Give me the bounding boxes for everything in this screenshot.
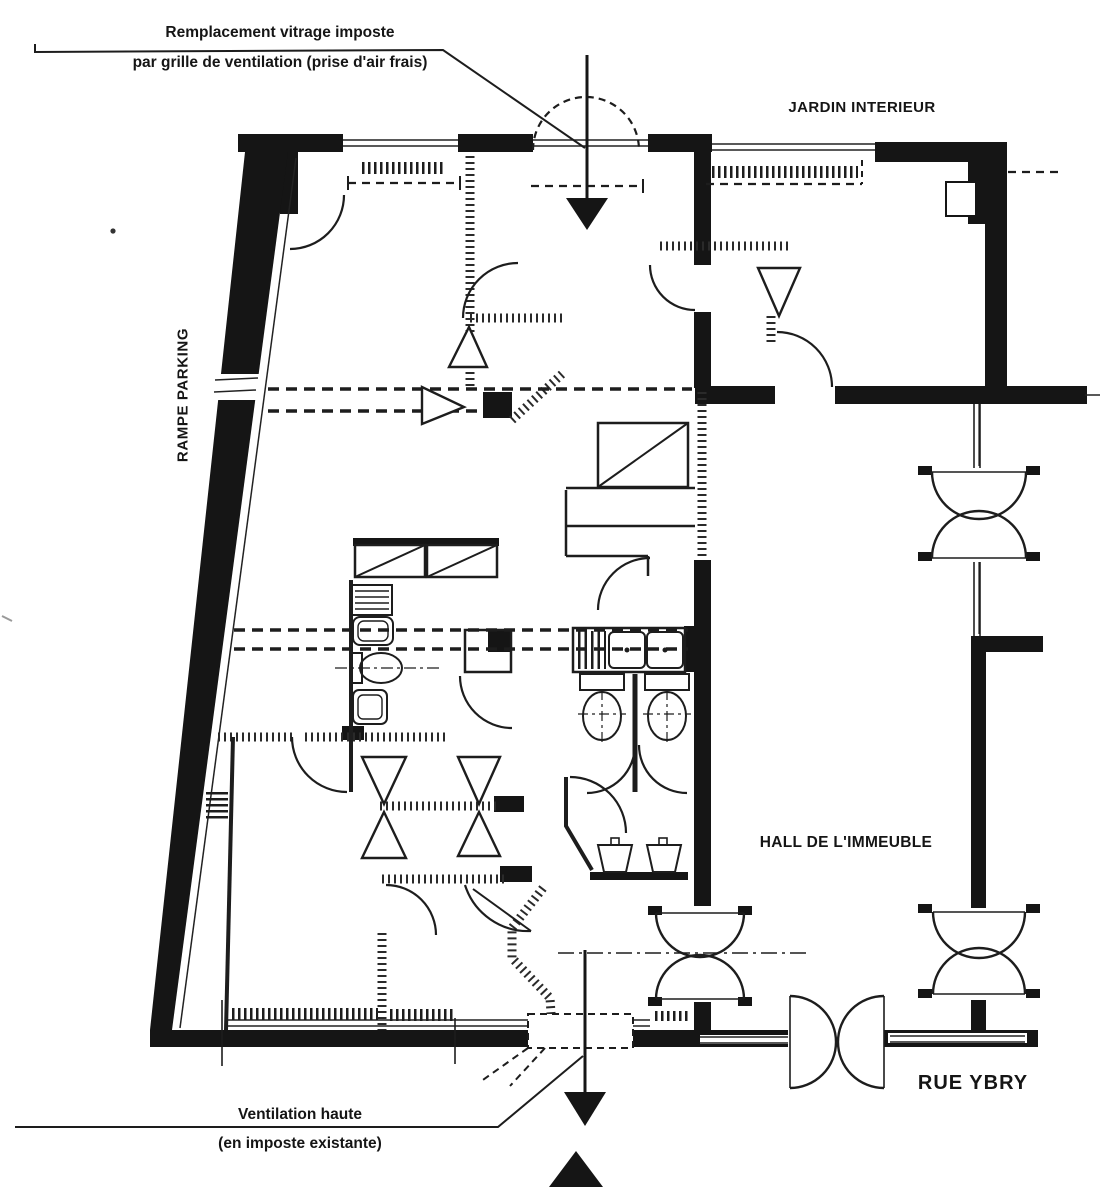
north-arrow-icon <box>549 1151 603 1187</box>
double-swing-doors <box>656 472 1026 1088</box>
annotation-vitrage-line2: par grille de ventilation (prise d'air f… <box>90 48 470 78</box>
floor-plan-drawing <box>0 0 1100 1200</box>
fixtures <box>351 585 689 872</box>
floor-plan-page: Remplacement vitrage imposte par grille … <box>0 0 1100 1200</box>
label-jardin-interieur: JARDIN INTERIEUR <box>742 99 982 116</box>
door-arcs <box>290 195 832 935</box>
outer-walls <box>150 134 1087 1047</box>
ventilation-duct-lines <box>234 389 692 649</box>
label-hall-immeuble: HALL DE L'IMMEUBLE <box>732 834 960 852</box>
scan-artifacts <box>2 228 116 621</box>
annotation-ventilation-line2: (en imposte existante) <box>110 1129 490 1158</box>
label-rampe-parking: RAMPE PARKING <box>175 328 192 462</box>
airflow-arrow-top-icon <box>566 55 608 230</box>
annotation-vitrage-line1: Remplacement vitrage imposte <box>90 18 470 48</box>
leader-lines <box>15 44 585 1127</box>
label-rue-ybry: RUE YBRY <box>888 1072 1058 1095</box>
annotation-ventilation-haute: Ventilation haute (en imposte existante) <box>110 1100 490 1158</box>
radiator-hatches <box>217 168 858 1016</box>
windows <box>225 140 1100 1044</box>
annotation-ventilation-line1: Ventilation haute <box>110 1100 490 1129</box>
left-slanted-wall <box>150 152 976 1030</box>
annotation-vitrage-imposte: Remplacement vitrage imposte par grille … <box>90 18 470 78</box>
